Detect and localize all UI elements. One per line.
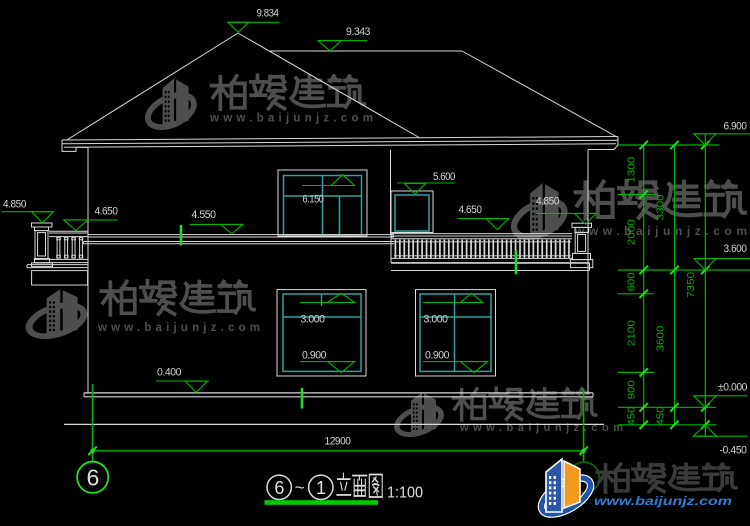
svg-text:0.900: 0.900: [425, 349, 450, 361]
svg-text:3.000: 3.000: [424, 314, 449, 326]
svg-text:0.400: 0.400: [157, 367, 182, 379]
svg-text:2100: 2100: [627, 320, 638, 346]
svg-text:3.600: 3.600: [724, 243, 748, 255]
svg-text:6: 6: [274, 478, 284, 498]
svg-text:-0.450: -0.450: [720, 445, 748, 457]
svg-text:9.834: 9.834: [257, 8, 280, 20]
svg-text:3.000: 3.000: [301, 314, 326, 326]
svg-text:12900: 12900: [325, 436, 352, 448]
svg-text:1300: 1300: [627, 156, 638, 182]
svg-text:450: 450: [656, 406, 667, 425]
svg-text:±0.000: ±0.000: [718, 382, 748, 394]
svg-text:4.650: 4.650: [95, 206, 119, 218]
svg-text:4.650: 4.650: [459, 204, 483, 216]
svg-text:5.600: 5.600: [433, 171, 456, 183]
svg-text:3600: 3600: [656, 325, 667, 351]
svg-text:4.850: 4.850: [536, 196, 560, 208]
svg-text:7350: 7350: [686, 272, 697, 298]
svg-text:6.900: 6.900: [724, 121, 748, 133]
svg-text:1:100: 1:100: [387, 485, 423, 502]
svg-text:3300: 3300: [656, 194, 667, 220]
svg-text:1: 1: [316, 478, 326, 498]
svg-text:4.550: 4.550: [192, 209, 217, 221]
svg-text:9.343: 9.343: [346, 26, 371, 38]
svg-text:6.150: 6.150: [303, 194, 324, 206]
svg-text:600: 600: [627, 272, 638, 291]
svg-text:900: 900: [627, 380, 638, 399]
svg-text:0.900: 0.900: [302, 349, 327, 361]
svg-text:6: 6: [87, 465, 99, 491]
svg-text:www.baijunjz.com: www.baijunjz.com: [594, 494, 732, 508]
svg-text:4.850: 4.850: [3, 199, 27, 211]
svg-text:2000: 2000: [627, 219, 638, 245]
svg-text:~: ~: [295, 478, 305, 497]
svg-text:450: 450: [627, 406, 638, 425]
